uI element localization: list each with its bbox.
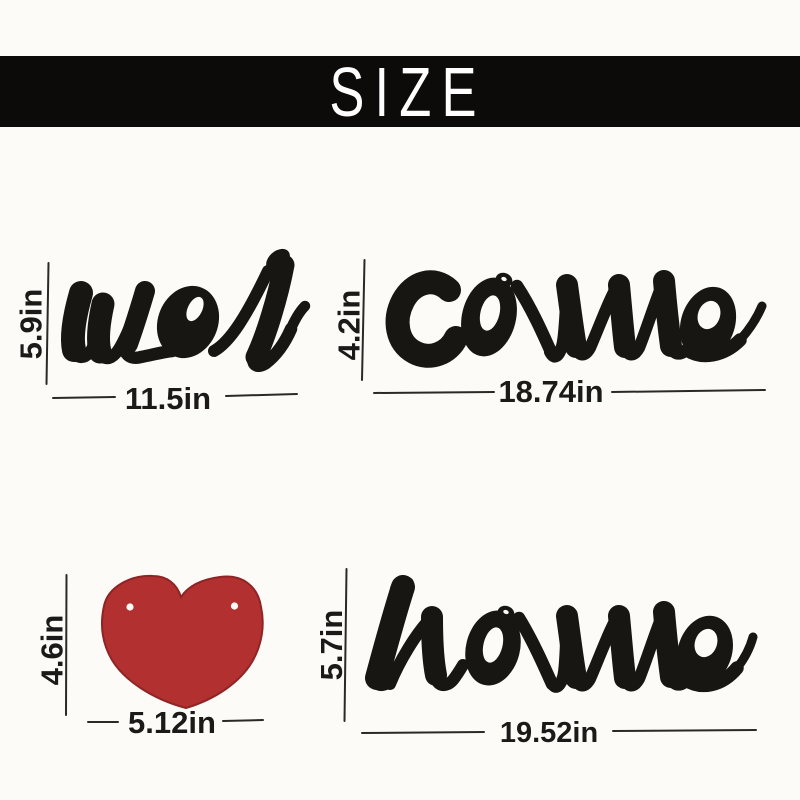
svg-text:11.5in: 11.5in xyxy=(125,381,211,416)
svg-text:5.7in: 5.7in xyxy=(314,610,349,681)
svg-text:18.74in: 18.74in xyxy=(498,374,603,409)
svg-text:5.12in: 5.12in xyxy=(128,705,216,740)
svg-text:19.52in: 19.52in xyxy=(500,717,598,749)
svg-text:4.6in: 4.6in xyxy=(35,615,70,686)
svg-text:4.2in: 4.2in xyxy=(332,290,367,361)
svg-text:5.9in: 5.9in xyxy=(14,289,49,360)
svg-text:SIZE: SIZE xyxy=(329,54,486,132)
